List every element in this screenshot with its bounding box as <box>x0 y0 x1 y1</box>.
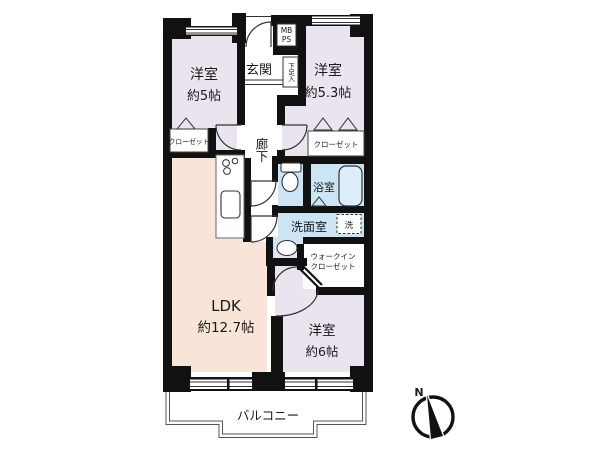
bathtub-icon <box>339 166 362 206</box>
wic-label-line2: クローゼット <box>311 261 356 271</box>
bedroom-53-window <box>312 17 360 25</box>
closet-right-label: クローゼット <box>314 139 359 149</box>
shoe-cabinet-label: 下足入 <box>287 62 295 82</box>
washroom-label: 洗面室 <box>291 219 327 234</box>
kitchen-sink-icon <box>221 191 240 218</box>
bedroom-53-size: 約5.3帖 <box>305 86 352 101</box>
hallway-label: 廊下 <box>254 137 269 163</box>
compass-icon: N <box>413 386 453 439</box>
ldk-size: 約12.7帖 <box>197 320 254 336</box>
bedroom-53-label: 洋室 <box>314 62 342 79</box>
ldk-label: LDK <box>211 297 242 315</box>
entrance-label: 玄関 <box>246 63 272 78</box>
bedroom-5-size: 約5帖 <box>187 89 221 104</box>
closet-left-label: クローゼット <box>169 137 210 146</box>
washbasin-icon <box>277 241 297 256</box>
pillar-bottom-left <box>163 366 191 392</box>
ldk-balcony-window <box>190 380 252 390</box>
bath-label: 浴室 <box>313 180 335 194</box>
bedroom-6-size: 約6帖 <box>306 344 339 359</box>
bedroom-6-balcony-window <box>285 380 353 390</box>
floor-plan: 洋室 約5帖 洋室 約5.3帖 玄関 廊下 浴室 洗面室 洗 クローゼット クロ… <box>0 0 600 450</box>
bedroom-6-label: 洋室 <box>309 322 336 339</box>
toilet-icon <box>281 163 301 172</box>
bedroom-5-label: 洋室 <box>190 66 218 83</box>
meter-box-label-ps: PS <box>282 35 292 44</box>
floor-plan-page: 洋室 約5帖 洋室 約5.3帖 玄関 廊下 浴室 洗面室 洗 クローゼット クロ… <box>0 0 600 450</box>
balcony-label: バルコニー <box>237 408 299 423</box>
pillar-bottom-right <box>350 366 373 392</box>
washer-label: 洗 <box>345 220 354 231</box>
meter-box-label-mb: MB <box>281 26 293 35</box>
compass-north-label: N <box>414 386 423 399</box>
wic-label-line1: ウォークイン <box>311 252 356 261</box>
